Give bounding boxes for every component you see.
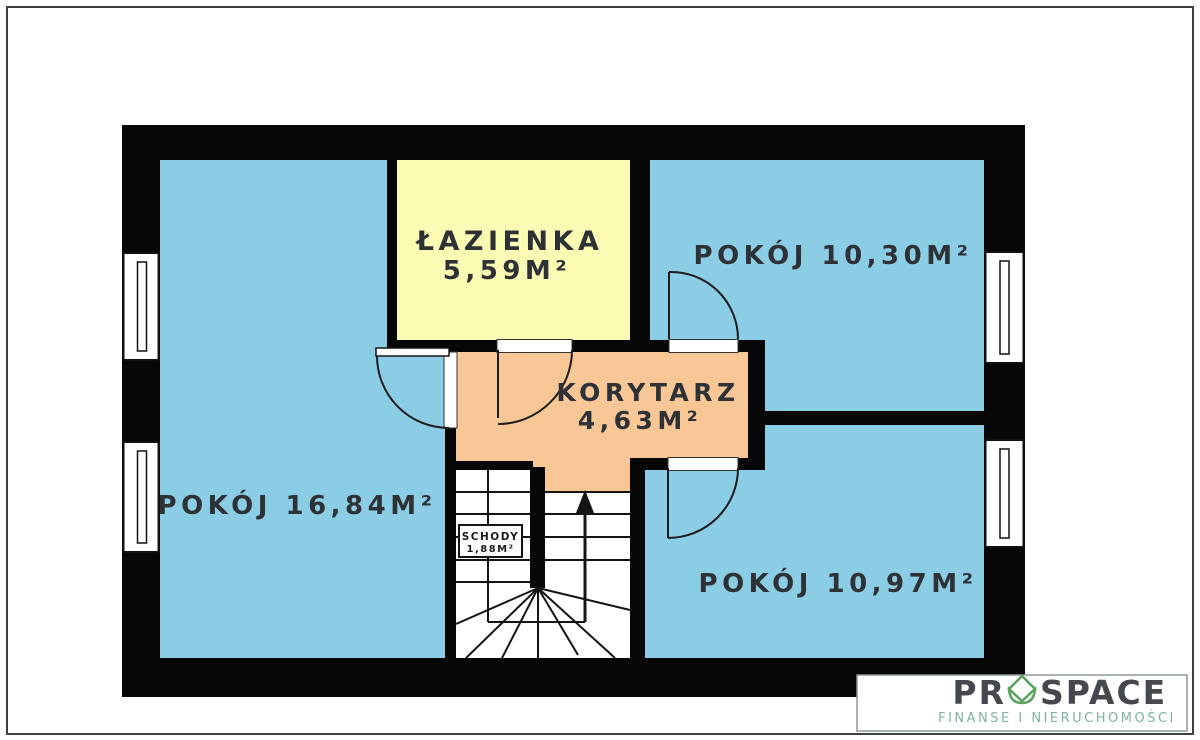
stairs-name-label: SCHODY [462,531,520,543]
wall-stairs-top [456,461,533,470]
wall-corridor-right [748,348,765,470]
corridor-area-label: 4,63M² [578,406,703,435]
window-left-lower [124,442,159,552]
prospace-logo: PR SPACE FINANSE I NIERUCHOMOŚCI [857,673,1187,731]
room-left-label: POKÓJ 16,84M² [158,489,437,521]
window-right-upper [986,252,1024,363]
corridor-fill-over-stairs [545,470,630,492]
opening-room-top-right-door [669,340,738,353]
wall-left [122,125,160,697]
floor-plan-image: SCHODY 1,88M² ŁAZIENKA 5,59M² POKÓJ 10,3… [0,0,1200,740]
wall-stairs-stringer [530,467,545,588]
opening-room-bottom-right-door [668,458,738,471]
logo-tagline: FINANSE I NIERUCHOMOŚCI [938,710,1176,726]
opening-bathroom-door [497,340,572,353]
room-top-right-label: POKÓJ 10,30M² [694,239,973,271]
window-left-upper [124,253,159,360]
floor-plan-drawing: SCHODY 1,88M² ŁAZIENKA 5,59M² POKÓJ 10,3… [0,0,1200,740]
window-right-lower [986,440,1024,547]
wall-right [984,125,1025,697]
bathroom-name-label: ŁAZIENKA [415,226,604,257]
logo-brand-suffix: SPACE [1040,673,1167,712]
wall-bathroom-left [387,158,397,352]
stairs-area-label: 1,88M² [466,544,514,555]
wall-stairs-right [630,458,645,660]
wall-top [122,125,1025,160]
bathroom-area-label: 5,59M² [443,256,571,286]
wall-bathroom-right [630,158,650,352]
corridor-name-label: KORYTARZ [556,378,739,407]
opening-room-left-door [444,352,457,428]
schody-label-box: SCHODY 1,88M² [459,525,522,557]
logo-brand-prefix: PR [952,673,1006,712]
room-bottom-right-label: POKÓJ 10,97M² [699,567,978,599]
wall-between-right-rooms [765,411,985,425]
